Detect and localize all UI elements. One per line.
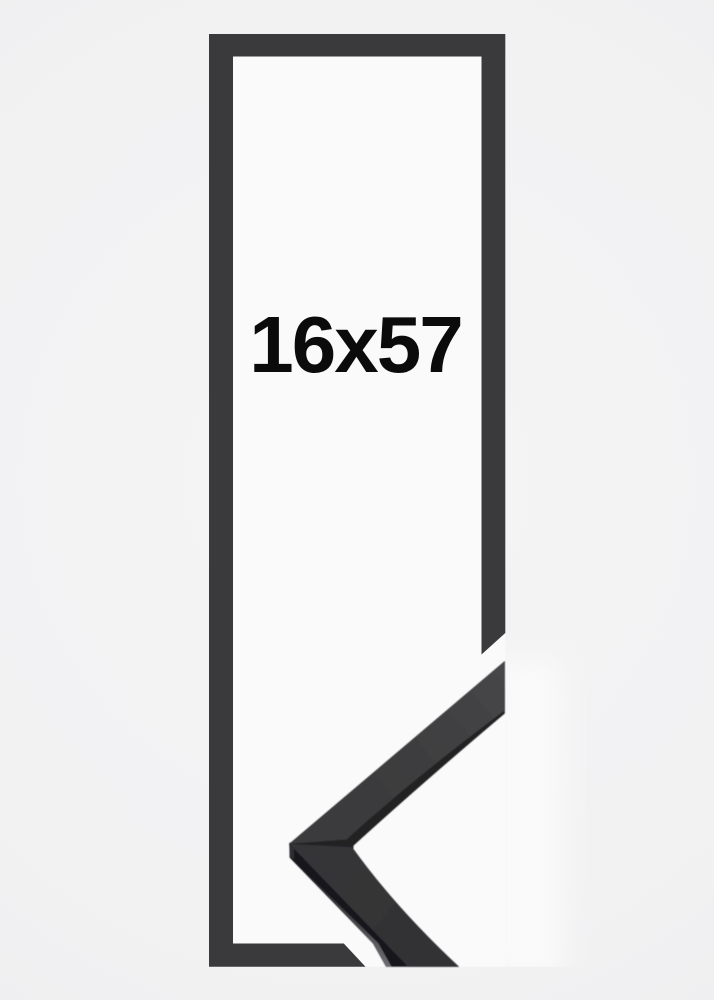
svg-text:16x57: 16x57	[249, 300, 461, 389]
